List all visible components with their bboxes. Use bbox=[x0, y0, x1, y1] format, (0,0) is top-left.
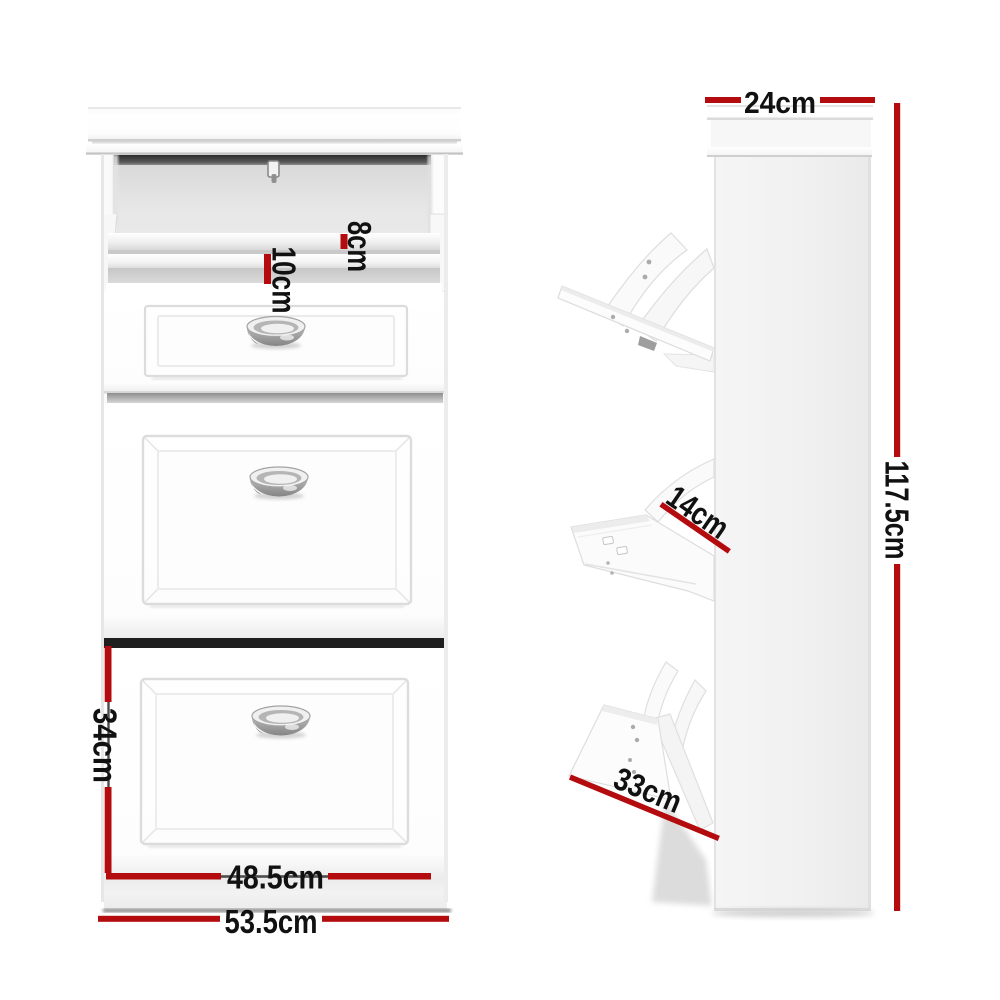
svg-text:24cm: 24cm bbox=[744, 85, 816, 120]
svg-text:10cm: 10cm bbox=[266, 247, 303, 314]
svg-text:34cm: 34cm bbox=[87, 708, 124, 783]
svg-text:8cm: 8cm bbox=[341, 221, 378, 272]
svg-text:53.5cm: 53.5cm bbox=[225, 903, 318, 940]
svg-text:117.5cm: 117.5cm bbox=[879, 461, 916, 560]
svg-text:48.5cm: 48.5cm bbox=[227, 859, 324, 896]
